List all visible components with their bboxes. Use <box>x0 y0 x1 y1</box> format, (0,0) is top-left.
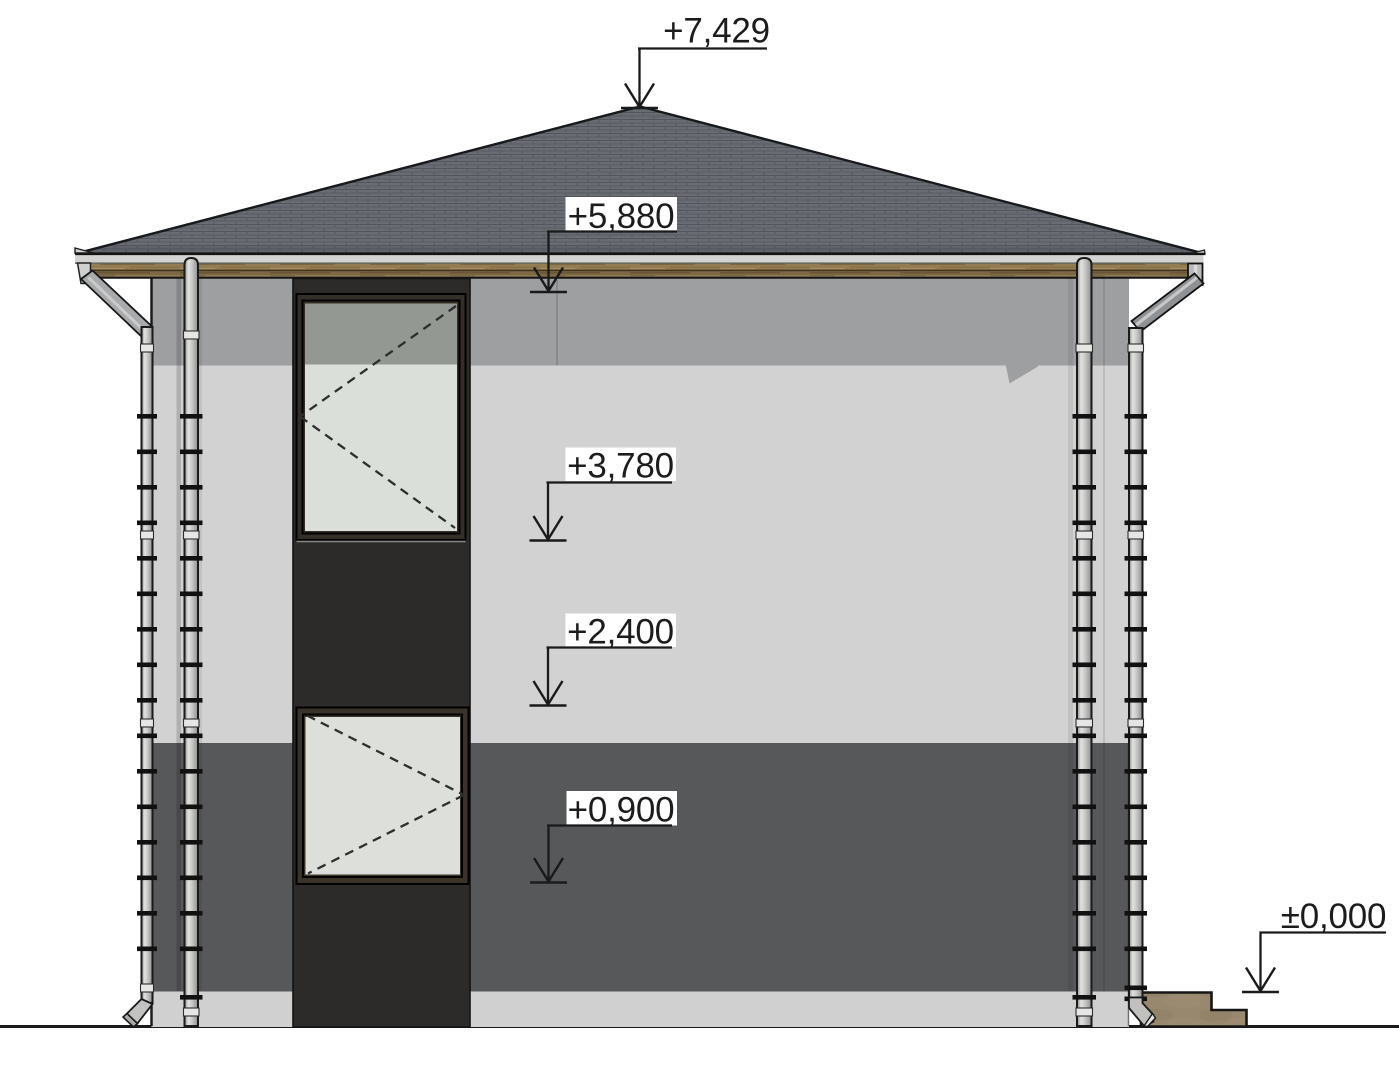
svg-text:+7,429: +7,429 <box>663 12 770 51</box>
svg-text:+2,400: +2,400 <box>567 613 674 652</box>
svg-text:+0,900: +0,900 <box>568 791 675 830</box>
svg-text:+3,780: +3,780 <box>567 447 674 486</box>
svg-text:+5,880: +5,880 <box>568 197 675 236</box>
svg-text:±0,000: ±0,000 <box>1281 897 1387 936</box>
